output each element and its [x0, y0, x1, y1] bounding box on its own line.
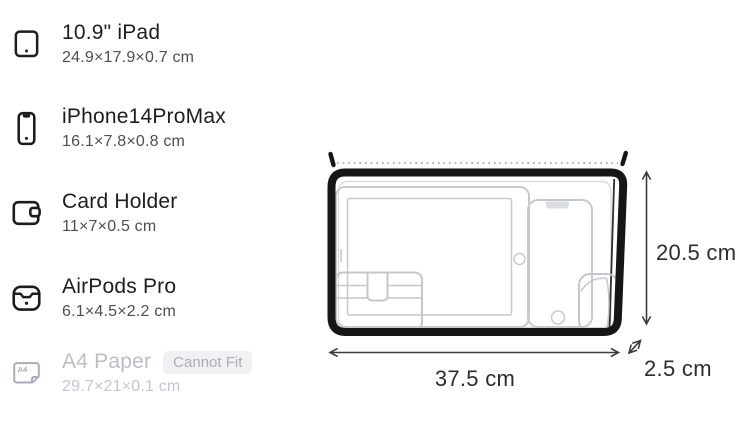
- bag-inner-wall: [339, 182, 612, 328]
- tablet-icon: [10, 29, 42, 59]
- width-dimension-label: 37.5 cm: [420, 366, 530, 392]
- earbuds-outline: [579, 274, 618, 332]
- item-name: iPhone14ProMax: [62, 105, 226, 129]
- item-name: Card Holder: [62, 190, 177, 214]
- list-item-card-holder: Card Holder 11×7×0.5 cm: [10, 190, 177, 236]
- item-dimensions: 29.7×21×0.1 cm: [62, 378, 252, 396]
- zipper-corner-tick-left: [331, 154, 334, 165]
- phone-outline: [528, 200, 592, 327]
- wallet-outline: [336, 273, 422, 330]
- item-dimensions: 16.1×7.8×0.8 cm: [62, 133, 226, 151]
- list-item-ipad: 10.9" iPad 24.9×17.9×0.7 cm: [10, 21, 194, 67]
- item-name: 10.9" iPad: [62, 21, 160, 45]
- list-item-iphone: iPhone14ProMax 16.1×7.8×0.8 cm: [10, 105, 226, 151]
- smartphone-icon: [10, 111, 42, 146]
- earbuds-case-icon: [10, 283, 42, 313]
- item-dimensions: 6.1×4.5×2.2 cm: [62, 303, 176, 321]
- list-item-airpods: AirPods Pro 6.1×4.5×2.2 cm: [10, 275, 176, 321]
- height-dimension-label: 20.5 cm: [656, 240, 736, 266]
- bag-depth-edge: [610, 179, 615, 328]
- svg-text:A4: A4: [17, 365, 28, 374]
- item-dimensions: 11×7×0.5 cm: [62, 218, 177, 236]
- list-item-a4-paper: A4 A4 Paper Cannot Fit 29.7×21×0.1 cm: [10, 350, 252, 396]
- item-name: A4 Paper: [62, 350, 151, 374]
- zipper-corner-tick-right: [623, 153, 626, 164]
- item-name: AirPods Pro: [62, 275, 176, 299]
- tablet-outline: [336, 187, 529, 327]
- wallet-icon: [10, 200, 42, 226]
- item-dimensions: 24.9×17.9×0.7 cm: [62, 49, 194, 67]
- cannot-fit-badge: Cannot Fit: [163, 351, 252, 374]
- depth-dimension-label: 2.5 cm: [644, 356, 712, 382]
- depth-arrow: [629, 341, 641, 354]
- a4-paper-icon: A4: [10, 361, 42, 385]
